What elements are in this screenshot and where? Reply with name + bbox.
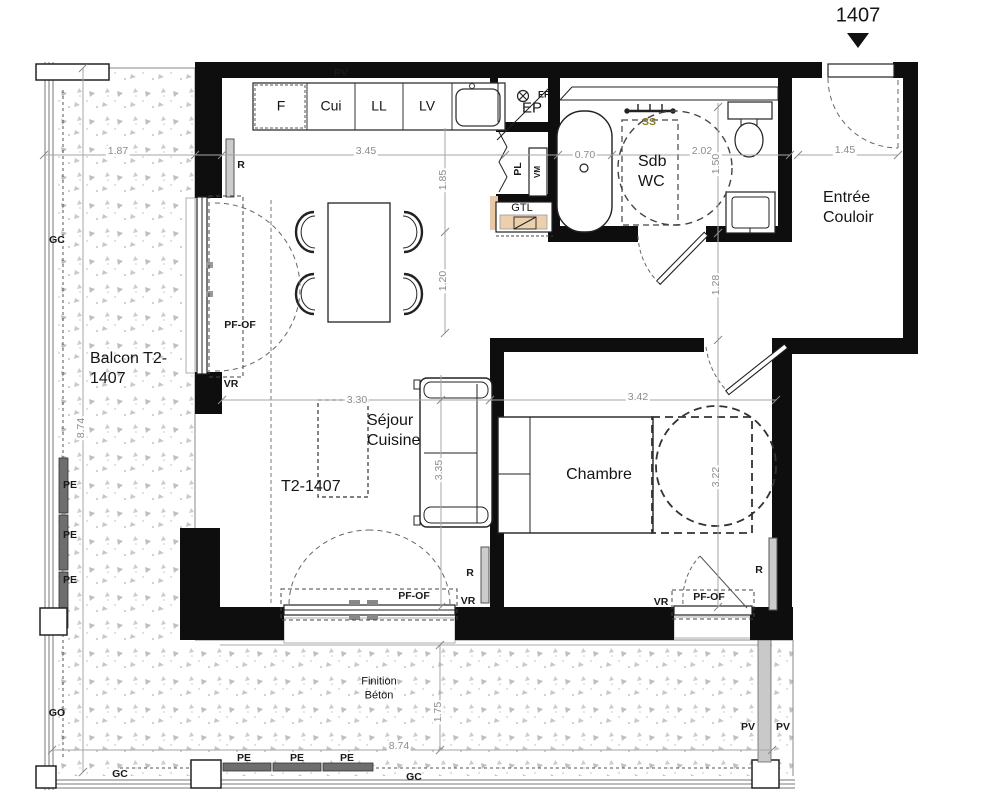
label-r-bedroom: R [755,565,763,576]
label-room-entry: Entrée Couloir [823,188,874,228]
label-gc-left: GC [49,235,65,246]
label-vm: VM [534,166,542,178]
dim-living-depth: 3.35 [434,458,445,482]
window-living [281,530,457,620]
label-pe-left-3: PE [63,575,77,586]
label-pv-bottom-2: PV [776,722,790,733]
window-bedroom [672,556,754,619]
label-pe-bottom-1: PE [237,753,251,764]
label-go-left: GO [49,708,65,719]
unit-number: 1407 [836,4,881,29]
kitchen-sink [456,89,500,126]
label-vr-left: VR [224,379,239,390]
dim-living-width: 3.30 [345,395,369,406]
label-room-balcony: Balcon T2- 1407 [90,349,167,389]
label-pv-top: PV [334,68,348,79]
label-ep-small: EP [538,91,550,100]
dim-living-mid: 1.20 [438,269,449,293]
floor-plan-drawing [0,0,987,800]
kitchen-unit-dishwasher: LV [419,97,435,115]
label-pe-bottom-3: PE [340,753,354,764]
entrance-door [828,64,898,148]
label-r-left: R [237,160,245,171]
dim-bedroom-width: 3.42 [626,392,650,403]
label-gc-bottom-1: GC [112,769,128,780]
toilet-bowl [735,123,763,157]
label-room-bathroom: Sdb WC [638,152,666,192]
label-room-bedroom: Chambre [566,465,632,485]
dim-kitchen: 3.45 [354,146,378,157]
label-room-living: Séjour Cuisine [367,411,420,451]
label-pfof-living: PF-OF [398,591,430,602]
toilet-tank [728,102,772,119]
label-pl: PL [513,162,524,175]
label-gtl: GTL [511,202,532,216]
bedroom-furniture [498,406,777,610]
dim-kitchen-depth: 1.85 [438,168,449,192]
label-finish-note: Finition Béton [361,675,396,703]
label-pe-bottom-2: PE [290,753,304,764]
label-ep: EP [522,100,542,119]
folding-door-icon [499,132,507,192]
label-vr-bedroom: VR [654,597,669,608]
label-living-unit: T2-1407 [281,477,341,497]
unit-marker-triangle-icon [847,33,869,48]
dim-balcony-bottom: 8.74 [387,741,411,752]
radiator-living-left [226,139,234,197]
label-pe-left-2: PE [63,530,77,541]
kitchen-unit-cooktop: Cui [320,97,341,115]
kitchen-unit-fridge: F [277,97,286,115]
label-pe-left-1: PE [63,480,77,491]
label-pv-bottom-1: PV [741,722,755,733]
dim-hallway: 1.28 [711,273,722,297]
balcony-divider-wall [758,640,771,762]
label-pfof-bedroom: PF-OF [693,592,725,603]
radiator-living-bottom [481,547,489,603]
dim-tub: 0.70 [573,150,597,161]
living-furniture [226,139,492,605]
kitchen-unit-washer: LL [371,97,387,115]
window-left [197,196,300,377]
floor-plan: 1407 Balcon T2- 1407 Séjour Cuisine T2-1… [0,0,987,800]
accessibility-square-bedroom [652,417,752,533]
dim-bathroom-depth: 1.50 [711,152,722,176]
label-gc-bottom-2: GC [406,772,422,783]
label-ss: SS [642,117,656,128]
bathroom-door [638,232,708,284]
dining-table [328,203,390,322]
dim-entry: 1.45 [833,145,857,156]
radiator-bedroom [769,538,777,610]
label-vr-living: VR [461,596,476,607]
dim-balcony-top: 1.87 [106,146,130,157]
walls [180,62,918,640]
label-pfof-left: PF-OF [224,320,256,331]
dim-bedroom-depth: 3.22 [711,465,722,489]
dim-balcony-side: 8.74 [76,416,87,440]
dim-balcony-bottom-depth: 1.75 [433,700,444,724]
label-r-living: R [466,568,474,579]
